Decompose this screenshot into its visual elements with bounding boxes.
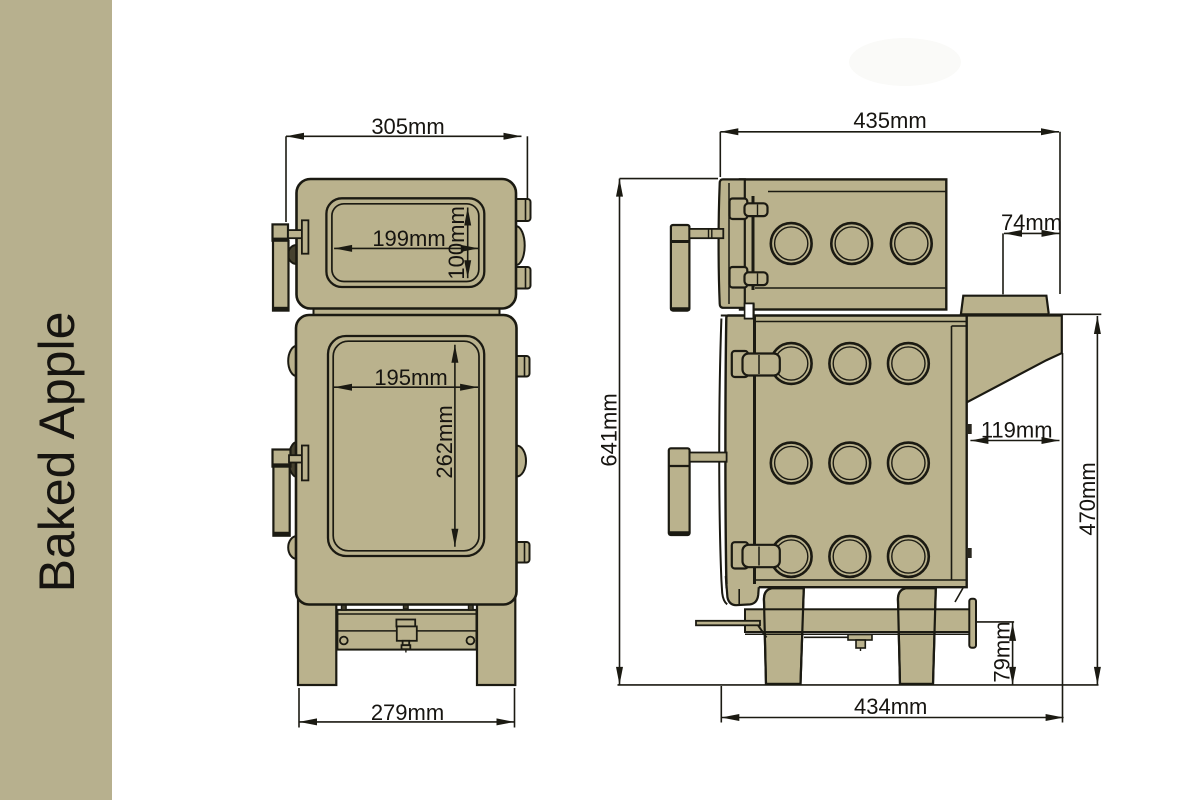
svg-text:434mm: 434mm <box>854 694 927 719</box>
svg-text:79mm: 79mm <box>990 621 1015 682</box>
svg-text:279mm: 279mm <box>371 700 444 725</box>
svg-text:199mm: 199mm <box>372 226 445 251</box>
svg-text:262mm: 262mm <box>432 405 457 478</box>
svg-text:305mm: 305mm <box>371 114 444 139</box>
svg-text:470mm: 470mm <box>1075 462 1100 535</box>
svg-text:641mm: 641mm <box>597 393 622 466</box>
svg-text:119mm: 119mm <box>981 417 1053 442</box>
svg-text:Baked Apple: Baked Apple <box>29 312 85 593</box>
svg-text:74mm: 74mm <box>1001 210 1062 235</box>
svg-text:195mm: 195mm <box>374 365 447 390</box>
svg-text:435mm: 435mm <box>853 108 926 133</box>
svg-text:100mm: 100mm <box>444 206 469 279</box>
